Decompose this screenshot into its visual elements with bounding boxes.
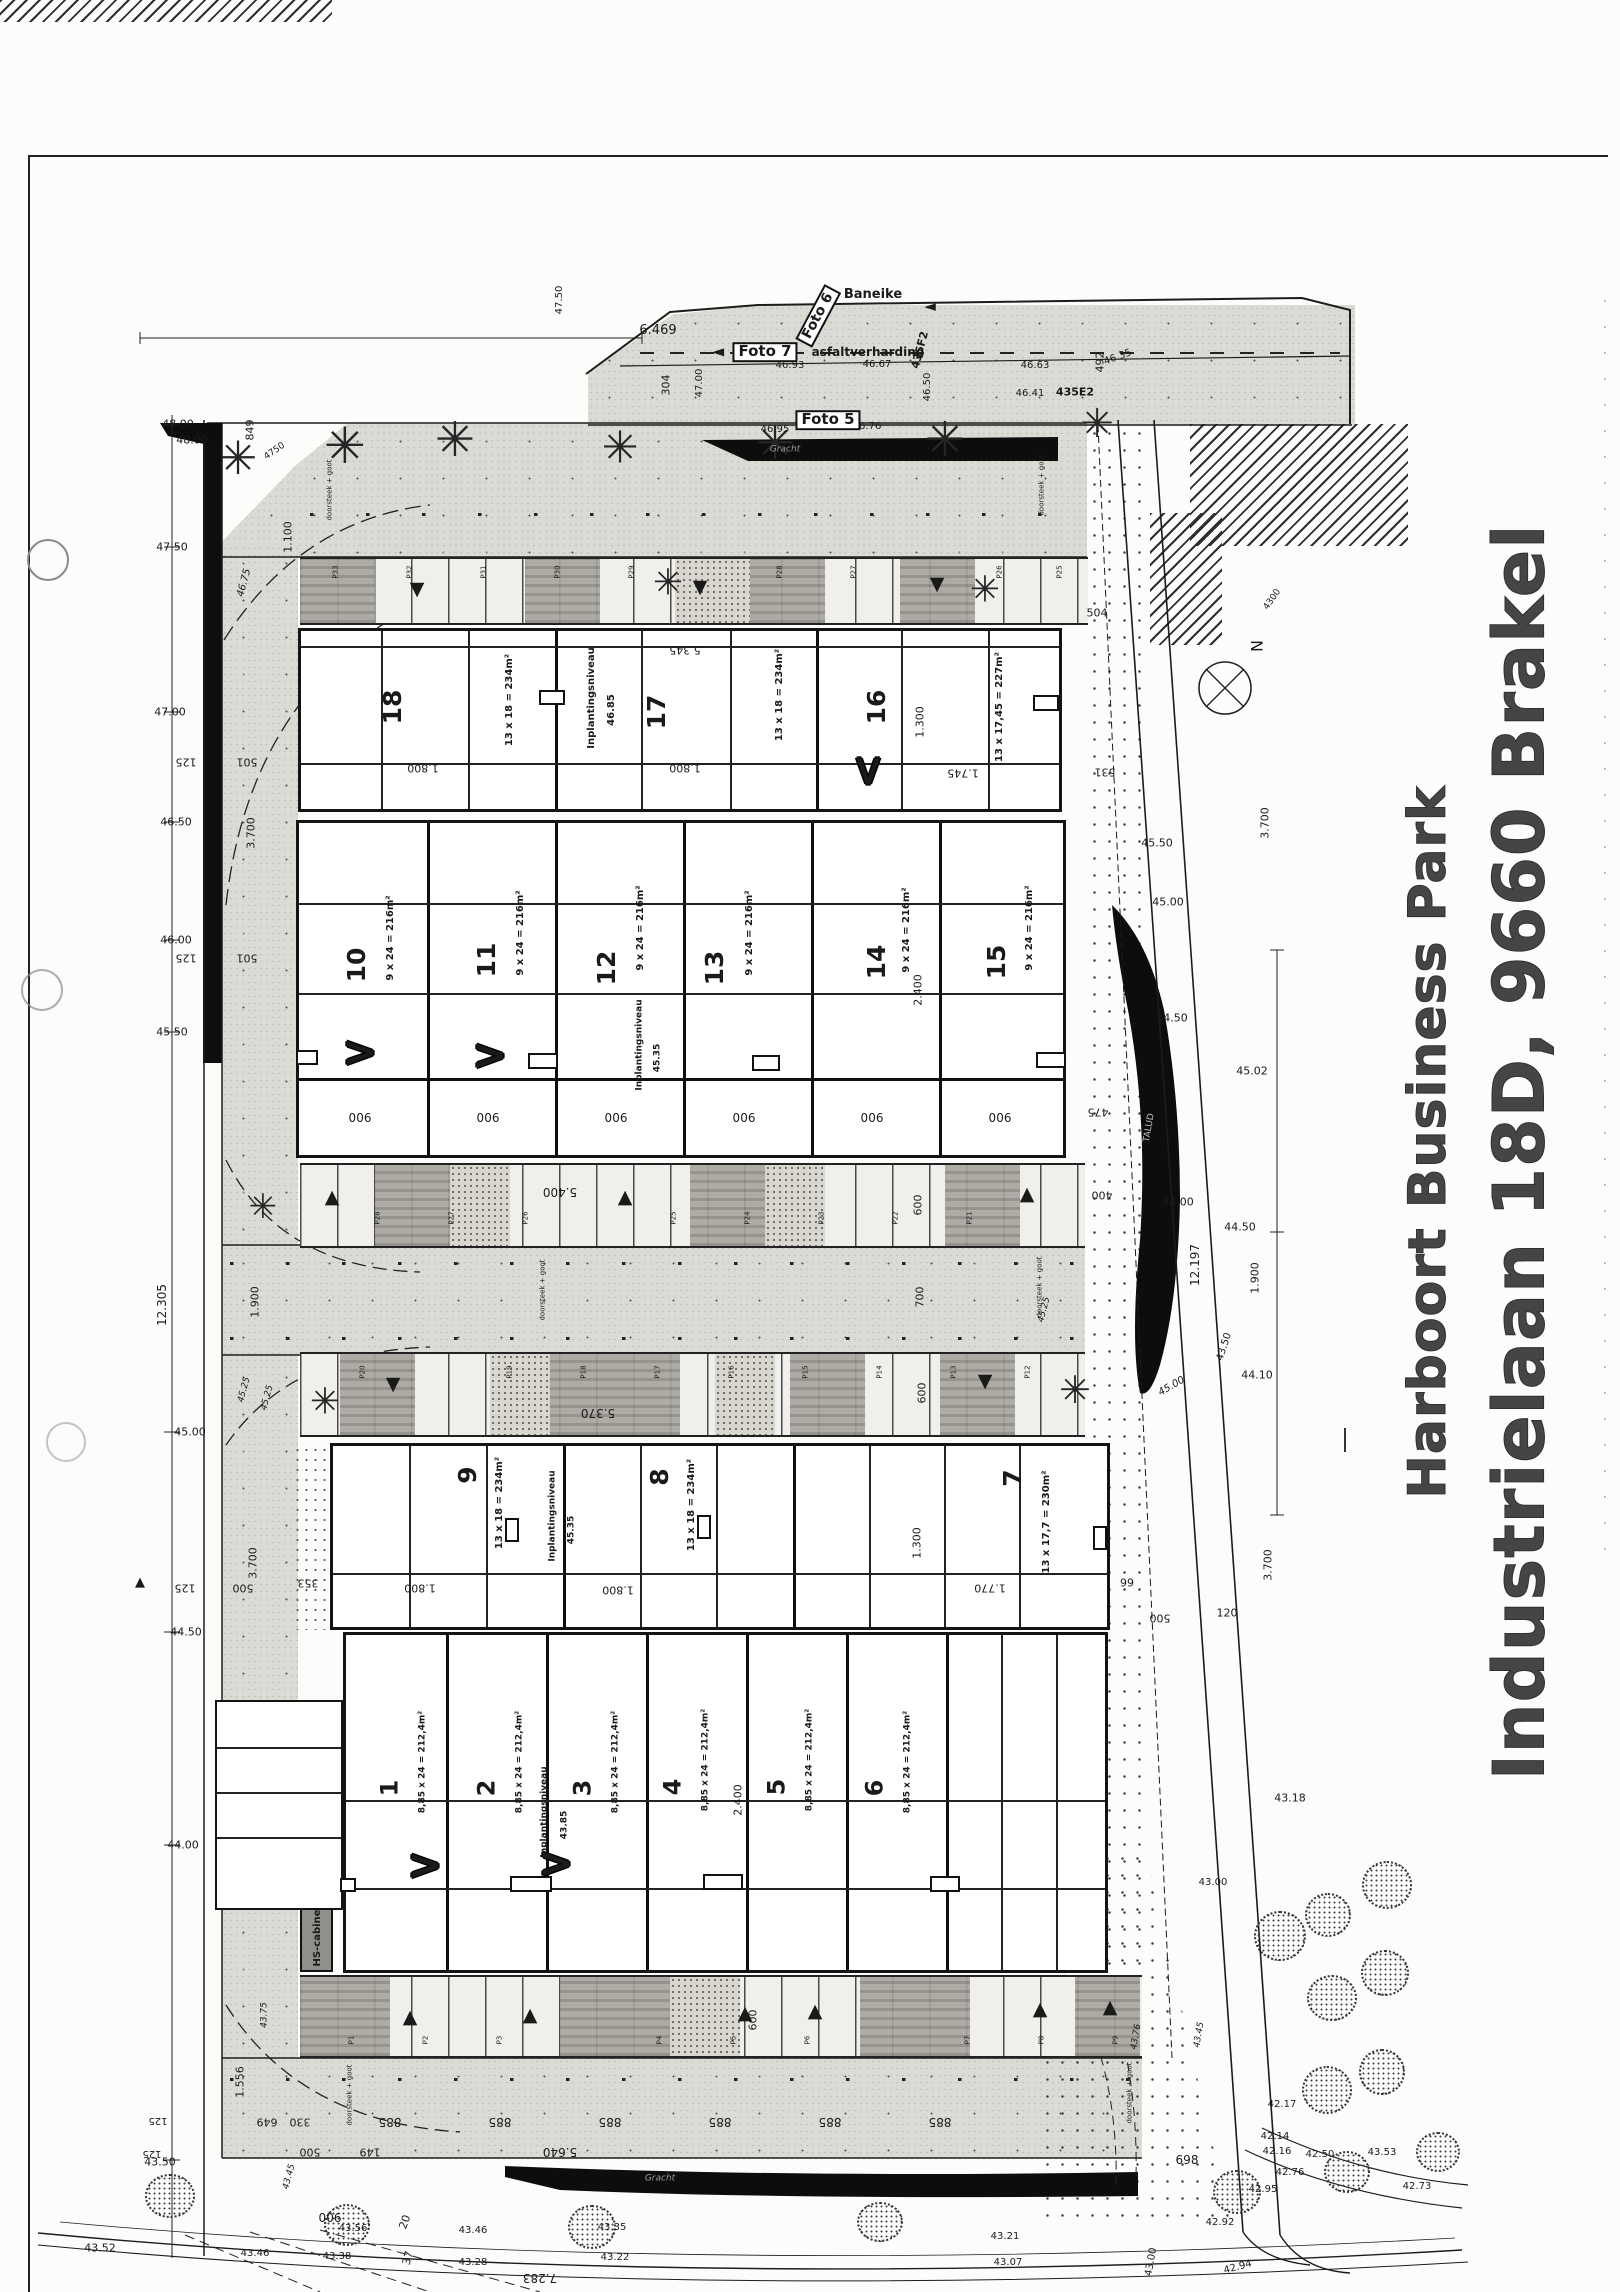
dim-885-6: 885 (929, 2116, 952, 2128)
dim-1770: 1.770 (974, 1582, 1006, 1593)
unit-18: 18 (380, 690, 406, 725)
dim-4345: 43.45 (282, 2163, 298, 2190)
elev-r-4450a: 44.50 (1156, 1012, 1188, 1023)
unit-13-size: 9 x 24 = 216m² (745, 890, 755, 975)
arrow-r3-1: ▼ (386, 1375, 401, 1395)
arrow-r2-1: ▲ (325, 1188, 340, 1208)
dim-125-3: 125 (175, 1582, 196, 1593)
elev-4750: 47.50 (156, 541, 188, 552)
spot-4348: 43.46 (241, 2249, 270, 2259)
arrow-r4-2: ▲ (523, 2006, 538, 2026)
dim-353: 353 (298, 1577, 319, 1588)
unit-12-size: 9 x 24 = 216m² (636, 885, 646, 970)
dim-4375-l: 43.75 (260, 2002, 269, 2028)
dim-1800-a2: 1.800 (669, 762, 701, 773)
level-band-b-1: Inplantingsniveau (635, 999, 644, 1090)
stall-p23c: P27 (448, 1211, 455, 1224)
unit-8-size: 13 x 18 = 234m² (687, 1459, 697, 1551)
spot-4273: 42.73 (1403, 2182, 1432, 2192)
elev-r-4500: 45.00 (1152, 896, 1184, 907)
stall-p21c: P25 (670, 1211, 677, 1224)
stall-p18c: P22 (892, 1211, 899, 1224)
dim-3700-l1: 3.700 (245, 817, 256, 849)
label-asfaltverharding: asfaltverharding (812, 346, 925, 358)
bay-900-6: 900 (989, 1111, 1012, 1123)
stall-p12l: P12 (1024, 1365, 1031, 1378)
dim-885-1: 885 (379, 2116, 402, 2128)
unit-15: 15 (984, 945, 1010, 980)
unit-9-size: 13 x 18 = 234m² (495, 1457, 505, 1549)
doorsteek-mid-2: doorsteek + goot (1036, 1256, 1043, 1317)
spot-4663: 46.63 (1021, 361, 1050, 371)
level-band-c-2: 45.35 (567, 1516, 576, 1544)
dim-2400-b: 2.400 (912, 974, 923, 1006)
site-plan-page: ✳✳✳✳✳✳✳✳✳✳✳✳ Harboort Business ParkIndus… (0, 0, 1620, 2292)
unit-4: 4 (661, 1779, 686, 1796)
unit-2: 2 (475, 1780, 500, 1797)
unit-12: 12 (594, 951, 620, 986)
spot-4695: 46.95 (761, 425, 790, 435)
level-band-c-1: Inplantingsniveau (548, 1470, 557, 1561)
dim-1800-c2: 1.800 (602, 1584, 634, 1595)
parcel-435f2: 435F2 (910, 330, 931, 370)
stall-p22c: P26 (522, 1211, 529, 1224)
doorsteek-bot-2: doorsteek + goot (1126, 2062, 1133, 2123)
stall-p29: P29 (628, 565, 635, 578)
unit-17-size: 13 x 18 = 234m² (775, 649, 785, 741)
gate-chevron-unit11: > (472, 1033, 507, 1077)
spot-4525-c: 45.25 (237, 1376, 253, 1403)
unit-10-size: 9 x 24 = 216m² (386, 895, 396, 980)
unit-10: 10 (344, 948, 370, 983)
dim-5400: 5.400 (543, 1186, 577, 1198)
unit-4-size: 8,85 x 24 = 212,4m² (701, 1709, 710, 1811)
unit-18-size: 13 x 18 = 234m² (505, 654, 515, 746)
bay-900-3: 900 (605, 1111, 628, 1123)
elev-r-4318: 43.18 (1274, 1792, 1306, 1803)
gate-chevron-unit10: > (342, 1030, 377, 1074)
spot-4307: 43.07 (994, 2258, 1023, 2268)
elev-4600: 46.00 (160, 934, 192, 945)
spot-4667: 46.67 (863, 360, 892, 370)
unit-9: 9 (455, 1466, 481, 1483)
spot-4294: 42.94 (1223, 2259, 1253, 2276)
bay-900-5: 900 (861, 1111, 884, 1123)
stall-p28: P28 (776, 565, 783, 578)
dim-500-1: 500 (233, 1582, 254, 1593)
unit-5-size: 8,85 x 24 = 212,4m² (805, 1709, 814, 1811)
spot-4276: 42.76 (1276, 2168, 1305, 2178)
title-line1: Harboort Business Park (1401, 785, 1455, 1498)
dim-2400-d: 2.400 (732, 1784, 743, 1816)
foto6-label: Foto 6 (795, 284, 840, 347)
elev-r-4450b: 44.50 (1224, 1221, 1256, 1232)
unit-5: 5 (765, 1779, 790, 1796)
foto7-label: Foto 7 (732, 342, 797, 362)
doorsteek-bot-1: doorsteek + goot (346, 2064, 353, 2125)
spot-4214: 42.14 (1261, 2132, 1290, 2142)
stall-p2: P2 (422, 2036, 429, 2045)
elev-4550: 45.50 (156, 1026, 188, 1037)
arrow-r4-4: ▲ (808, 2002, 823, 2022)
spot-4253: 43.53 (1368, 2148, 1397, 2158)
arrow-left-edge: ▲ (135, 1576, 145, 1590)
elev-4700: 47.00 (154, 706, 186, 717)
elev-r-4345: 43.45 (1193, 2022, 1207, 2049)
elev-4500: 45.00 (174, 1426, 206, 1437)
stall-p3: P3 (496, 2036, 503, 2045)
elev-4650: 46.50 (160, 816, 192, 827)
gate-chevron-unit1: > (407, 1843, 442, 1887)
dim-1556: 1.556 (234, 2066, 245, 2098)
bay-900-2: 900 (477, 1111, 500, 1123)
dim-3700-l2: 3.700 (247, 1547, 258, 1579)
arrow-r4-3: ▲ (738, 2004, 753, 2024)
dim-531: 531 (1095, 766, 1116, 777)
unit-14-size: 9 x 24 = 216m² (902, 887, 912, 972)
stall-p14l: P14 (876, 1365, 883, 1378)
stall-p20l: P20 (359, 1365, 366, 1378)
spot-4635: 46.35 (1103, 348, 1133, 368)
stall-p33: P33 (332, 565, 339, 578)
gate-chevron-unit2: > (538, 1841, 573, 1885)
spot-4300v: 43.00 (1144, 2247, 1159, 2277)
doorsteek-top-1: doorsteek + goot (326, 459, 333, 520)
elev-r-4500d: 45.00 (1157, 1375, 1187, 1398)
spot-4217: 42.17 (1268, 2100, 1297, 2110)
dim-5370: 5.370 (581, 1407, 615, 1419)
stall-p17c: P21 (966, 1211, 973, 1224)
dim-12197: 12.197 (1189, 1244, 1201, 1286)
spot-4675: 46.75 (236, 568, 253, 598)
dim-3700-r2: 3.700 (1262, 1549, 1273, 1581)
elev-4352: 43.52 (84, 2242, 116, 2253)
spot-4328: 43.28 (459, 2258, 488, 2268)
dim-649: 649 (257, 2116, 278, 2127)
dim-125-2: 125 (176, 952, 197, 963)
dim-1900-r: 1.900 (1249, 1262, 1260, 1294)
dim-3700-r1: 3.700 (1259, 807, 1270, 839)
unit-3: 3 (571, 1780, 596, 1797)
stall-p20c: P24 (744, 1211, 751, 1224)
elev-r-4376: 43.76 (1130, 2024, 1144, 2051)
dim-885-4: 885 (709, 2116, 732, 2128)
doorsteek-mid-1: doorsteek + goot (539, 1259, 546, 1320)
arrow-r2-3: ▲ (1020, 1185, 1035, 1205)
spot-4356: 43.56 (339, 2224, 368, 2234)
dim-501-2: 501 (237, 952, 258, 963)
elev-r-4502: 45.02 (1236, 1065, 1268, 1076)
stall-p4: P4 (656, 2036, 663, 2045)
bay-900-1: 900 (349, 1111, 372, 1123)
stall-p31: P31 (480, 565, 487, 578)
dim-37: 37 (401, 2250, 416, 2266)
spot-4322: 43.22 (601, 2253, 630, 2263)
dim-400: 400 (1092, 1189, 1113, 1200)
arrow-r1-2: ▼ (693, 578, 708, 598)
dim-1800-c1: 1.800 (404, 1582, 436, 1593)
unit-11: 11 (474, 943, 500, 978)
spot-4525-l: 45.25 (260, 1384, 276, 1411)
dim-849: 849 (244, 420, 255, 441)
stall-p15l: P15 (802, 1365, 809, 1378)
dim-66: 66 (1120, 1576, 1134, 1587)
unit-1: 1 (378, 1780, 403, 1797)
stall-p19l: P19 (506, 1365, 513, 1378)
talud-label: TALUD (1143, 1113, 1157, 1143)
spot-4641: 46.41 (1016, 389, 1045, 399)
dim-304: 304 (660, 375, 671, 396)
gracht-bottom-label: Gracht (645, 2174, 675, 2183)
dim-885-5: 885 (819, 2116, 842, 2128)
unit-7: 7 (1000, 1469, 1026, 1486)
elev-4450: 44.50 (170, 1626, 202, 1637)
dim-4700: 47.00 (695, 369, 705, 398)
dim-6469: 6.469 (639, 324, 676, 338)
unit-6: 6 (863, 1780, 888, 1797)
dim-5345: 5.345 (669, 644, 701, 655)
spot-4292: 42.92 (1206, 2218, 1235, 2228)
elev-4400: 44.00 (167, 1839, 199, 1850)
level-band-a-1: Inplantingsniveau (587, 647, 597, 748)
spot-4650: 46.50 (923, 373, 933, 402)
dim-1100: 1.100 (282, 521, 293, 553)
stall-p24c: P28 (374, 1211, 381, 1224)
arrow-r4-5: ▲ (1033, 2000, 1048, 2020)
dim-1300-c: 1.300 (911, 1527, 922, 1559)
spot-4216: 42.16 (1263, 2147, 1292, 2157)
elev-4350: 43.50 (144, 2156, 176, 2167)
elev-r-4550: 45.50 (1141, 837, 1173, 848)
dim-700-c: 700 (914, 1287, 925, 1308)
dim-500-r: 500 (1150, 1612, 1171, 1623)
stall-p30: P30 (554, 565, 561, 578)
foto7-arrowhead: ◄ (712, 344, 724, 361)
hs-cabine-label: HS-cabine (313, 1910, 323, 1967)
unit-8: 8 (647, 1468, 673, 1485)
unit-3-size: 8,85 x 24 = 212,4m² (611, 1711, 620, 1813)
elev-r-4400: 44.00 (1162, 1196, 1194, 1207)
labels-layer: Harboort Business ParkIndustrielaan 18D,… (0, 0, 1620, 2292)
dim-500-b: 500 (300, 2146, 321, 2157)
spot-4295: 42.95 (1249, 2185, 1278, 2195)
spot-4321: 43.21 (991, 2232, 1020, 2242)
stall-p18l: P18 (580, 1365, 587, 1378)
dim-600-r3: 600 (916, 1383, 927, 1404)
stall-p32: P32 (406, 565, 413, 578)
unit-13: 13 (702, 951, 728, 986)
spot-4693: 46.93 (776, 361, 805, 371)
dim-125-4: 125 (148, 2115, 167, 2125)
elev-4800a: 48.00 (162, 418, 194, 429)
stall-p5: P5 (730, 2036, 737, 2045)
parcel-435e2: 435E2 (1056, 386, 1094, 397)
elev-r-4350: 43.50 (1216, 1332, 1235, 1362)
unit-16-size: 13 x 17,45 = 227m² (995, 652, 1005, 762)
arrow-r1-3: ▼ (930, 575, 945, 595)
arrow-baneike: ◄ (924, 299, 936, 315)
dim-475: 475 (1088, 1106, 1109, 1117)
foto5-label: Foto 5 (795, 410, 860, 430)
dim-12305: 12.305 (156, 1284, 168, 1326)
dim-120: 120 (1217, 1607, 1238, 1618)
bay-900-4: 900 (733, 1111, 756, 1123)
stall-p19c: P23 (818, 1211, 825, 1224)
street-baneike: Baneike (844, 288, 902, 302)
spot-4346: 43.46 (459, 2226, 488, 2236)
stall-p26: P26 (996, 565, 1003, 578)
stall-p8: P8 (1038, 2036, 1045, 2045)
stall-p1: P1 (348, 2036, 355, 2045)
unit-2-size: 8,85 x 24 = 212,4m² (515, 1711, 524, 1813)
level-band-b-2: 45.35 (653, 1044, 662, 1072)
spot-4300t: 43.00 (1199, 1878, 1228, 1888)
dim-1745: 1.745 (947, 767, 979, 778)
stall-p13l: P13 (950, 1365, 957, 1378)
level-band-a-2: 46.85 (607, 694, 617, 726)
stall-p7: P7 (964, 2036, 971, 2045)
gracht-top-label: Gracht (770, 445, 800, 454)
arrow-r1-1: ▼ (410, 580, 425, 600)
dim-1300-a: 1.300 (914, 706, 925, 738)
dim-20: 20 (397, 2213, 413, 2230)
dim-1900-l: 1.900 (249, 1286, 260, 1318)
unit-7-size: 13 x 17,7 = 230m² (1042, 1470, 1052, 1573)
stall-p9: P9 (1112, 2036, 1119, 2045)
dim-885-2: 885 (489, 2116, 512, 2128)
dim-7283: 7.283 (523, 2272, 557, 2284)
dim-125-1: 125 (176, 756, 197, 767)
stall-p16l: P16 (728, 1365, 735, 1378)
level-band-d-2: 43.85 (560, 1811, 569, 1839)
stall-p17l: P17 (654, 1365, 661, 1378)
dim-600-r2: 600 (912, 1195, 923, 1216)
elev-4800b: 48.00 (176, 434, 208, 445)
dim-4750-rot: 47.50 (555, 286, 565, 315)
spot-4338: 43.38 (323, 2252, 352, 2262)
dim-330: 330 (290, 2116, 311, 2127)
unit-15-size: 9 x 24 = 216m² (1025, 885, 1035, 970)
title-line2: Industrielaan 18D, 9660 Brakel (1484, 524, 1557, 1781)
elev-r-4410: 44.10 (1241, 1369, 1273, 1380)
unit-17: 17 (644, 695, 670, 730)
dim-5640: 5.640 (543, 2146, 577, 2158)
stall-p27: P27 (850, 565, 857, 578)
dim-698: 698 (1176, 2154, 1199, 2166)
dim-885-3: 885 (599, 2116, 622, 2128)
dim-504: 504 (1087, 607, 1108, 618)
stall-p25: P25 (1056, 565, 1063, 578)
dim-4750-diag: 4750 (263, 442, 287, 463)
arrow-r4-6: ▲ (1103, 1998, 1118, 2018)
spot-4250: 42.50 (1306, 2150, 1335, 2160)
stall-p6: P6 (804, 2036, 811, 2045)
unit-11-size: 9 x 24 = 216m² (516, 890, 526, 975)
arrow-r4-1: ▲ (403, 2008, 418, 2028)
unit-1-size: 8,85 x 24 = 212,4m² (418, 1711, 427, 1813)
north-label: N (1250, 640, 1267, 652)
gate-chevron-unit16: > (847, 753, 891, 788)
unit-16: 16 (864, 690, 890, 725)
dim-501-1: 501 (237, 756, 258, 767)
dim-900-b: 900 (319, 2211, 342, 2223)
arrow-r2-2: ▲ (618, 1188, 633, 1208)
arrow-r3-2: ▼ (978, 1372, 993, 1392)
spot-4335: 43.35 (598, 2223, 627, 2233)
dim-149: 149 (360, 2146, 381, 2157)
dim-1800-a1: 1.800 (407, 762, 439, 773)
unit-6-size: 8,85 x 24 = 212,4m² (903, 1711, 912, 1813)
unit-14: 14 (864, 945, 890, 980)
doorsteek-top-2: doorsteek + goot (1038, 454, 1045, 515)
dim-4300: 4300 (1263, 588, 1284, 612)
